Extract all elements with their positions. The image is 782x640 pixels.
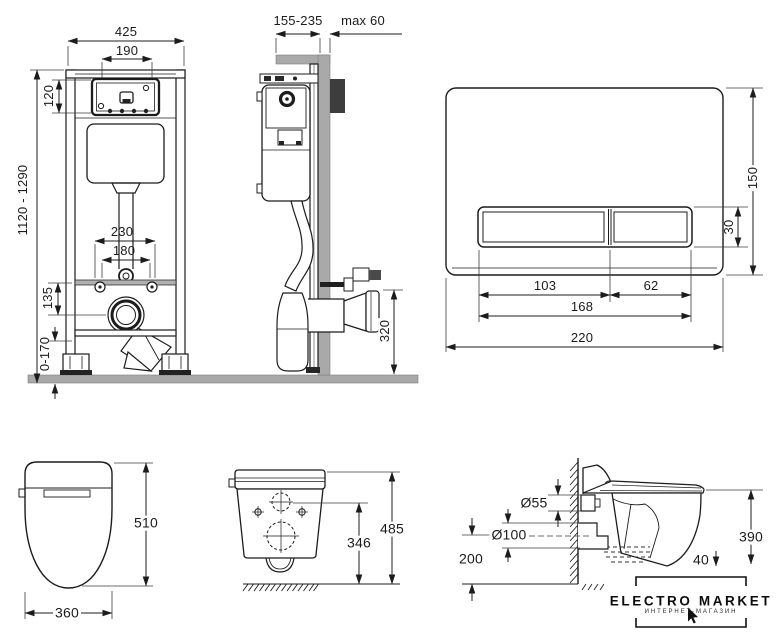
brand-name: ELECTRO MARKET [610,594,772,609]
dim-outlet-diameter: Ø100 [489,528,528,543]
dim-plate-width: 220 [571,331,593,345]
bowl-top-view [19,462,112,588]
dim-drop: 40 [693,553,709,568]
dim-fixing-outer: 230 [111,225,133,239]
dim-wall-max: max 60 [341,14,385,28]
brand-subtitle: ИНТЕРНЕТ-МАГАЗИН [645,609,738,615]
cistern-side [257,85,310,201]
flush-pipe [285,201,313,291]
wall-hatch [570,462,578,583]
outlet-connector [578,523,608,549]
dim-drain-offset: 135 [41,287,55,309]
wall-bracket [330,79,345,113]
inlet-connector [581,495,595,511]
dim-inlet-diameter: Ø55 [520,496,547,511]
side-button [19,489,25,497]
dim-foot-adjust: 0-170 [38,337,52,371]
flush-plate-view [446,88,723,275]
dim-bowl-width: 360 [53,606,81,621]
dim-button-right: 62 [644,279,659,293]
dim-frame-total-width: 425 [115,25,137,39]
drain-pipe [308,299,344,332]
dim-button-left: 103 [534,279,556,293]
dim-outlet-height: 320 [378,318,392,344]
ground-hatch [243,584,319,591]
dim-total-height: 485 [378,522,406,537]
dim-depth-range: 155-235 [273,14,322,28]
dim-plate-height: 150 [746,165,760,191]
dim-rim-height: 390 [737,530,765,545]
bowl-body [612,493,701,566]
dim-window-height: 120 [42,85,56,107]
dim-bowl-length: 510 [132,516,160,531]
siphon [277,293,308,371]
dim-button-height: 30 [722,220,736,235]
dim-buttons-width: 168 [571,300,593,314]
dim-window-width: 190 [116,44,138,58]
dim-fixing-inner: 180 [113,244,135,258]
technical-drawing-sheet: 425 190 120 1120 - 1290 230 180 135 0-17… [0,0,782,640]
dim-outlet-floor-height: 200 [459,552,483,567]
dim-frame-height-range: 1120 - 1290 [16,165,30,236]
bowl-side-view [462,458,704,590]
service-window [92,79,159,115]
dim-inlet-height: 346 [345,536,373,551]
mount-rail [75,280,176,285]
frame-front-view [60,70,191,375]
bowl-back-view [229,470,400,591]
